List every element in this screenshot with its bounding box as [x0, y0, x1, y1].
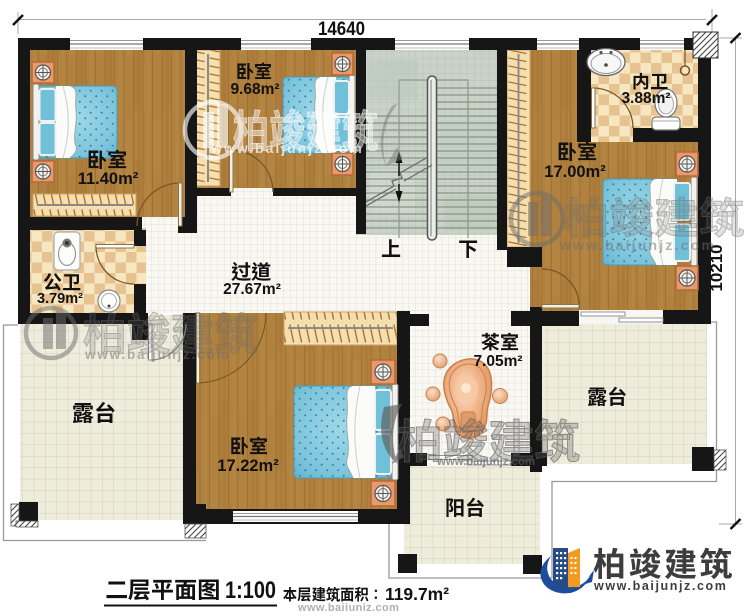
svg-text:www.baijunjz.com: www.baijunjz.com — [436, 454, 535, 468]
svg-text:119.7m²: 119.7m² — [385, 584, 449, 604]
svg-text:二层平面图: 二层平面图 — [105, 576, 220, 603]
svg-text:www.baijunjz.com: www.baijunjz.com — [84, 347, 230, 362]
svg-text:11.40m²: 11.40m² — [78, 170, 139, 188]
svg-text:17.22m²: 17.22m² — [217, 457, 279, 475]
svg-text:露台: 露台 — [587, 386, 627, 409]
svg-text:卧室: 卧室 — [557, 141, 597, 164]
svg-text:1:100: 1:100 — [225, 577, 276, 604]
svg-text:下: 下 — [458, 238, 478, 261]
svg-text:卧室: 卧室 — [230, 435, 268, 457]
svg-text:7.05m²: 7.05m² — [473, 353, 522, 370]
svg-text:公卫: 公卫 — [43, 271, 81, 293]
svg-text:27.67m²: 27.67m² — [223, 281, 281, 298]
svg-text:www.baijunjz.com: www.baijunjz.com — [593, 579, 727, 593]
svg-text:露台: 露台 — [72, 400, 116, 426]
svg-text:3.79m²: 3.79m² — [37, 291, 83, 307]
svg-text:内卫: 内卫 — [632, 71, 668, 92]
svg-text:柏竣建筑: 柏竣建筑 — [593, 544, 735, 583]
svg-text:www.baijunjz.com: www.baijunjz.com — [559, 237, 716, 253]
svg-text:本层建筑面积：: 本层建筑面积： — [283, 586, 383, 604]
svg-text:3.88m²: 3.88m² — [621, 90, 670, 107]
svg-text:柏竣建筑: 柏竣建筑 — [564, 192, 744, 242]
svg-text:9.68m²: 9.68m² — [230, 81, 279, 98]
svg-text:上: 上 — [381, 238, 401, 261]
svg-text:茶室: 茶室 — [481, 331, 519, 353]
svg-text:www.baijunjz.com: www.baijunjz.com — [210, 140, 364, 156]
svg-text:17.00m²: 17.00m² — [544, 163, 606, 181]
svg-text:卧室: 卧室 — [236, 61, 272, 82]
svg-text:14640: 14640 — [318, 19, 365, 40]
svg-text:阳台: 阳台 — [445, 497, 485, 520]
svg-text:卧室: 卧室 — [87, 149, 127, 172]
